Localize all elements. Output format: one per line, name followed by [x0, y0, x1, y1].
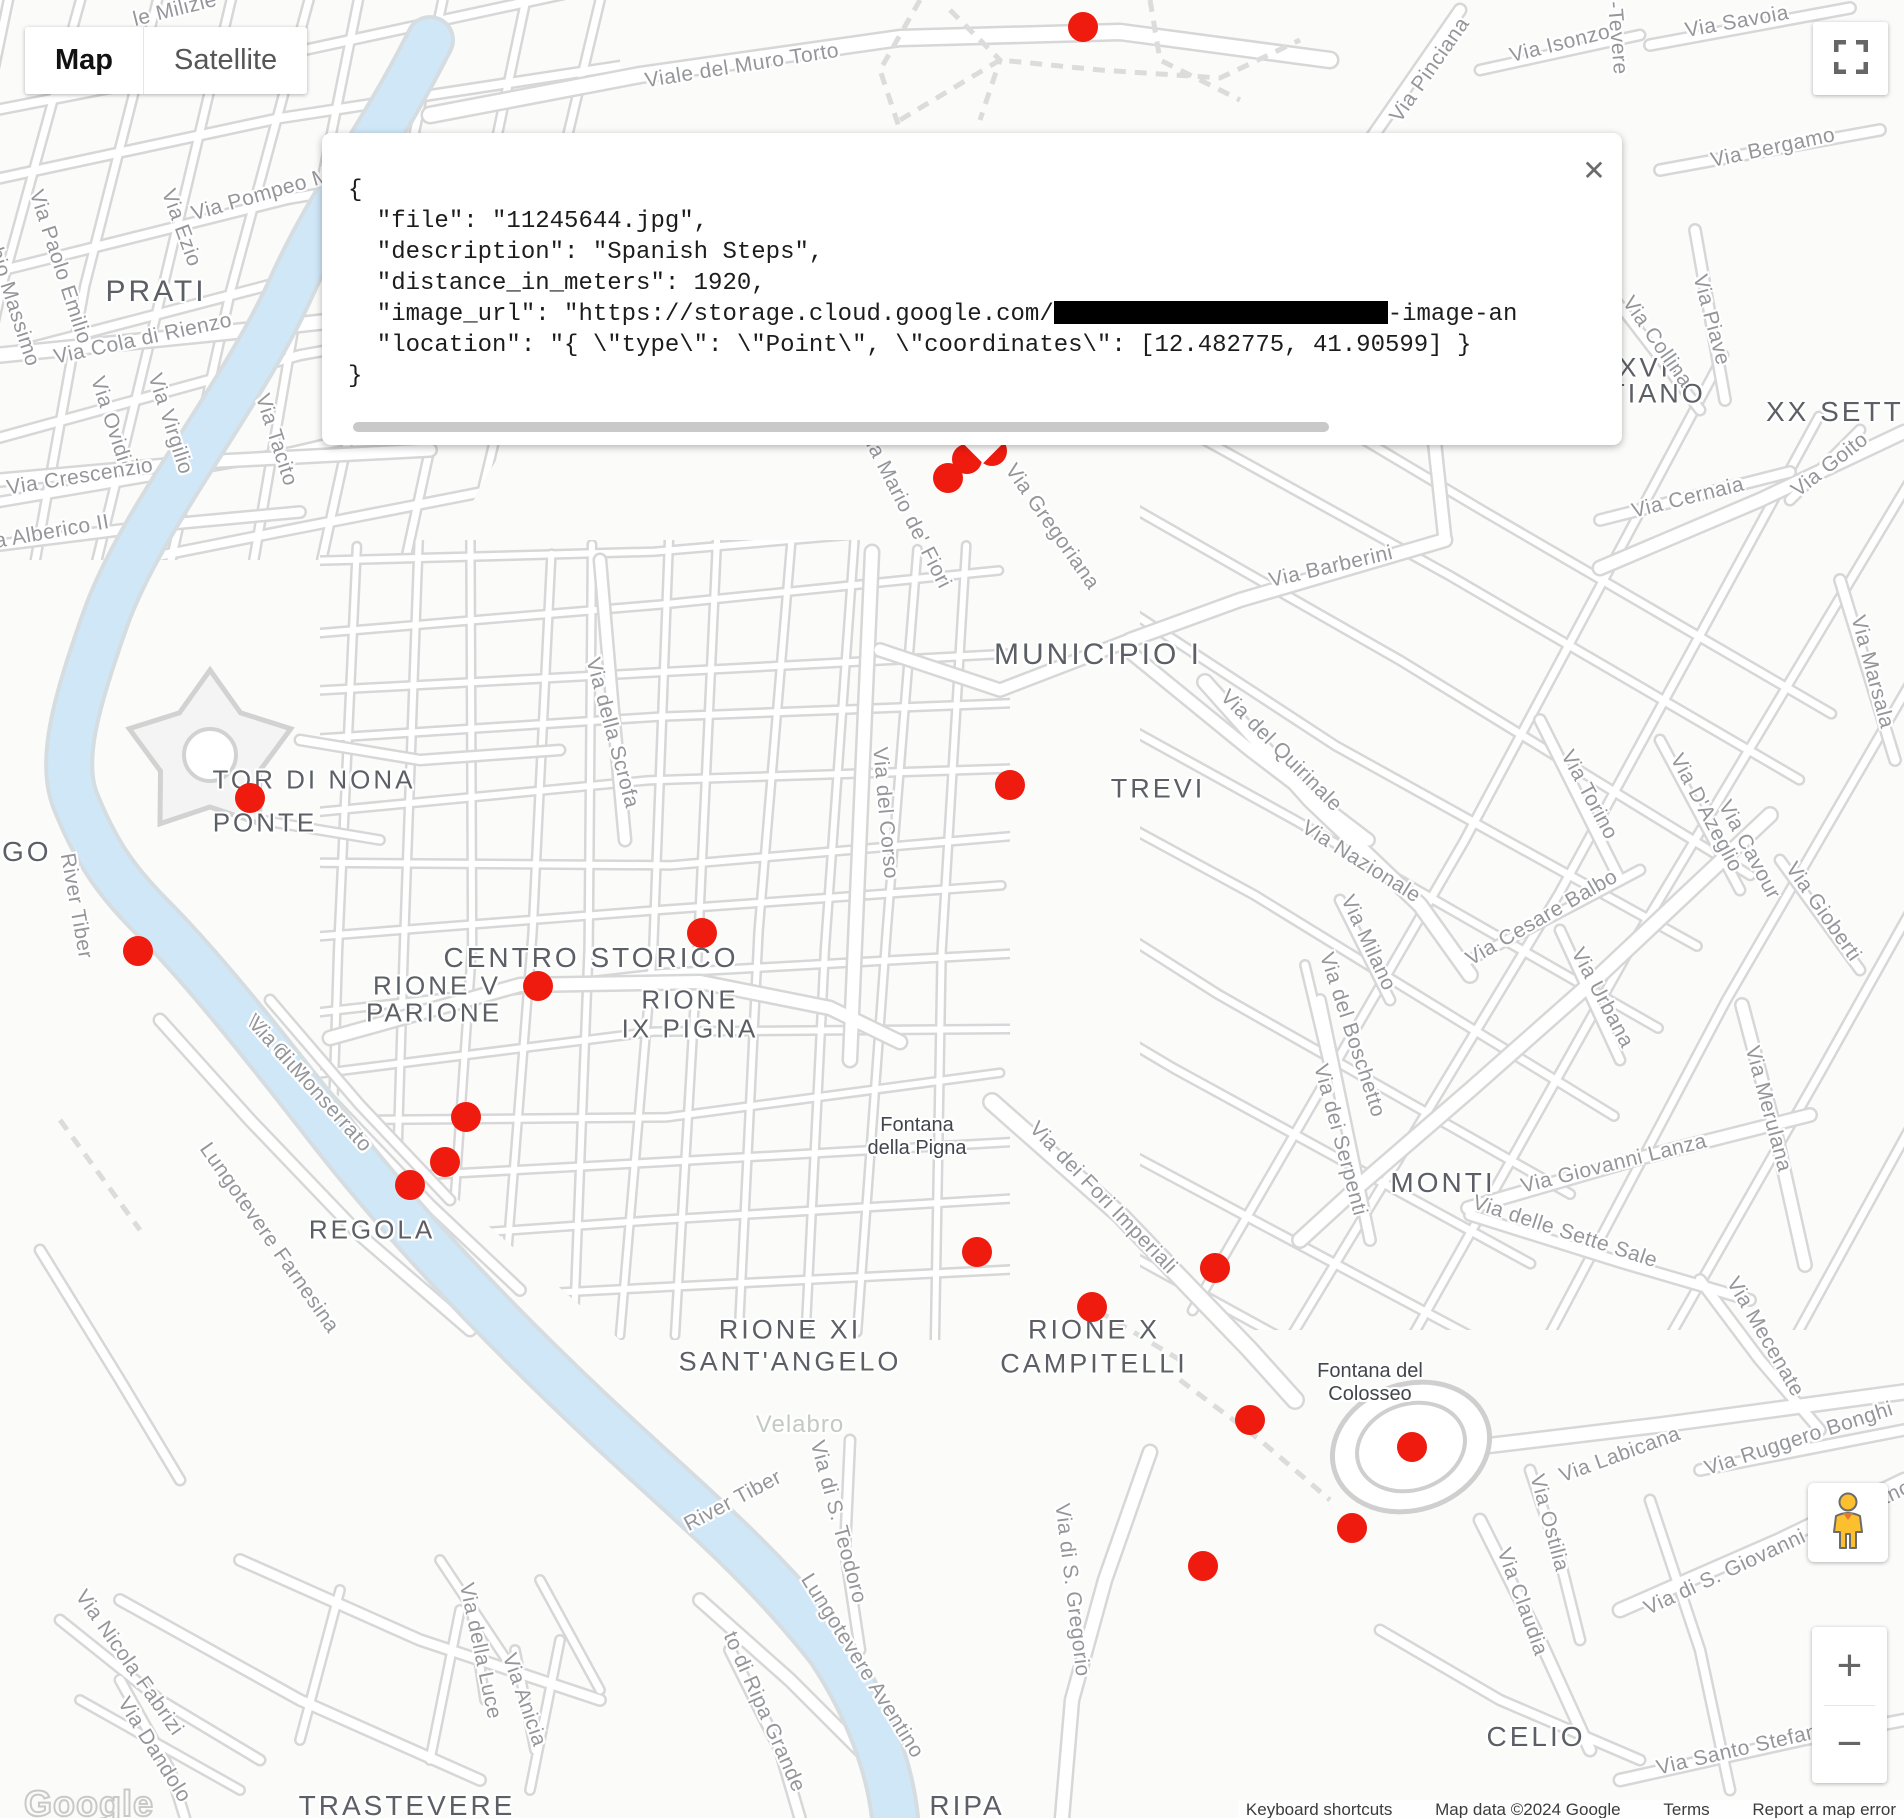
map-marker[interactable]	[395, 1170, 425, 1200]
map-button[interactable]: Map	[25, 27, 143, 94]
zoom-out-button[interactable]: −	[1812, 1706, 1887, 1784]
fullscreen-button[interactable]	[1813, 22, 1888, 95]
park-label: Velabro	[756, 1411, 844, 1439]
map-marker[interactable]	[1068, 12, 1098, 42]
redaction-overlay	[1054, 301, 1388, 324]
region-label: PONTE	[213, 808, 318, 839]
report-error-link[interactable]: Report a map error	[1752, 1800, 1896, 1818]
google-logo[interactable]: Google	[24, 1783, 154, 1818]
region-label: CELIO	[1486, 1721, 1585, 1753]
map-marker[interactable]	[123, 936, 153, 966]
region-label: PRATI	[105, 275, 206, 309]
map-marker[interactable]	[451, 1102, 481, 1132]
map-marker[interactable]	[1397, 1432, 1427, 1462]
pegman-button[interactable]	[1808, 1483, 1888, 1562]
region-label: RIONE	[641, 985, 738, 1016]
region-label: REGOLA	[309, 1215, 435, 1246]
fullscreen-icon	[1834, 40, 1868, 77]
map-marker[interactable]	[995, 770, 1025, 800]
region-label: CAMPITELLI	[1000, 1349, 1188, 1380]
region-label: SANT'ANGELO	[679, 1347, 902, 1378]
terms-link[interactable]: Terms	[1663, 1800, 1709, 1818]
map-marker[interactable]	[1337, 1513, 1367, 1543]
info-window-json: { "file": "11245644.jpg", "description":…	[348, 175, 1612, 405]
region-label: TRASTEVERE	[299, 1790, 516, 1818]
map-marker[interactable]	[962, 1237, 992, 1267]
keyboard-shortcuts-link[interactable]: Keyboard shortcuts	[1246, 1800, 1392, 1818]
zoom-control: + −	[1812, 1627, 1887, 1783]
region-label: XX SETTEM	[1766, 396, 1904, 428]
region-label: PARIONE	[366, 998, 502, 1029]
pegman-icon	[1826, 1492, 1870, 1553]
region-label: MUNICIPIO I	[994, 638, 1202, 672]
satellite-button[interactable]: Satellite	[143, 27, 307, 94]
map-marker[interactable]	[1077, 1292, 1107, 1322]
region-label: GO	[2, 836, 52, 868]
region-label: RIONE XI	[719, 1315, 862, 1346]
attribution-bar: Keyboard shortcuts Map data ©2024 Google…	[1238, 1800, 1904, 1818]
map-marker[interactable]	[933, 463, 963, 493]
poi-label: Fontana delColosseo	[1317, 1360, 1423, 1406]
map-type-control: Map Satellite	[25, 27, 307, 94]
map-marker[interactable]	[687, 918, 717, 948]
map-marker[interactable]	[235, 783, 265, 813]
map-marker[interactable]	[1235, 1405, 1265, 1435]
region-label: RIPA	[929, 1790, 1004, 1818]
map-data-text: Map data ©2024 Google	[1435, 1800, 1621, 1818]
map-marker[interactable]	[430, 1147, 460, 1177]
map-marker[interactable]	[523, 971, 553, 1001]
zoom-in-button[interactable]: +	[1812, 1627, 1887, 1705]
info-window: ✕ { "file": "11245644.jpg", "description…	[322, 133, 1622, 445]
map-marker[interactable]	[1188, 1551, 1218, 1581]
map-canvas[interactable]: PRATIGOTOR DI NONAPONTECENTRO STORICORIO…	[0, 0, 1904, 1818]
poi-label: Fontanadella Pigna	[868, 1114, 967, 1160]
region-label: TIANO	[1608, 379, 1706, 410]
region-label: TREVI	[1111, 774, 1206, 805]
info-window-scrollbar[interactable]	[353, 422, 1329, 432]
region-label: IX PIGNA	[622, 1014, 759, 1045]
map-marker[interactable]	[1200, 1253, 1230, 1283]
region-label: CENTRO STORICO	[443, 942, 738, 974]
